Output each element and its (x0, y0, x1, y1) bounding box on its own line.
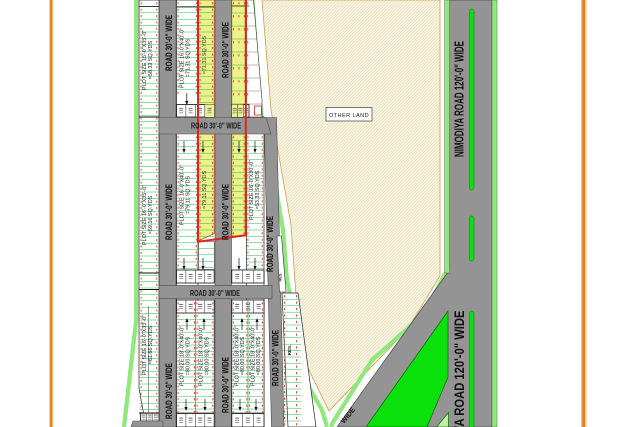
svg-text:=53.33 SQ.YDS: =53.33 SQ.YDS (255, 170, 261, 209)
svg-text:OTHER LAND: OTHER LAND (329, 113, 369, 119)
svg-text:ROAD 30'-0" WIDE: ROAD 30'-0" WIDE (163, 363, 174, 419)
svg-text:=79.11 SQ.YDS: =79.11 SQ.YDS (202, 171, 208, 210)
svg-text:=61.66 SQ.YDS: =61.66 SQ.YDS (148, 325, 154, 364)
svg-text:=58.33 SQ.YDS: =58.33 SQ.YDS (148, 40, 154, 79)
svg-text:ROAD 30'-0" WIDE: ROAD 30'-0" WIDE (219, 184, 230, 240)
svg-text:RES.: RES. (279, 273, 283, 282)
svg-text:NIMODIYA ROAD 120'-0" WIDE: NIMODIYA ROAD 120'-0" WIDE (452, 311, 467, 427)
svg-text:RES.: RES. (287, 345, 292, 356)
svg-text:ROAD 30'-0" WIDE: ROAD 30'-0" WIDE (264, 216, 275, 272)
svg-text:ROAD 30'-0" WIDE: ROAD 30'-0" WIDE (219, 22, 230, 78)
svg-text:=71.31 SQ.YDS: =71.31 SQ.YDS (202, 35, 208, 74)
svg-text:=80.00 SQ.YDS: =80.00 SQ.YDS (240, 336, 246, 375)
svg-text:=71.31 SQ.YDS: =71.31 SQ.YDS (186, 38, 192, 77)
svg-text:ROAD 30'-0" WIDE: ROAD 30'-0" WIDE (270, 330, 281, 386)
svg-text:=80.00 SQ.YDS: =80.00 SQ.YDS (256, 336, 262, 375)
svg-text:ROAD 30'-0" WIDE: ROAD 30'-0" WIDE (163, 15, 174, 71)
svg-text:ROAD 30'-0" WIDE: ROAD 30'-0" WIDE (163, 184, 174, 240)
svg-text:=59.16 SQ.YDS: =59.16 SQ.YDS (148, 195, 154, 234)
svg-text:ROAD 30'-0" WIDE: ROAD 30'-0" WIDE (190, 289, 240, 298)
svg-text:=80.00 SQ.YDS: =80.00 SQ.YDS (186, 336, 192, 375)
svg-text:ROAD 30'-0" WIDE: ROAD 30'-0" WIDE (191, 122, 241, 131)
svg-text:=80.00 SQ.YDS: =80.00 SQ.YDS (205, 336, 211, 375)
svg-text:=79.11 SQ.YDS: =79.11 SQ.YDS (186, 176, 192, 215)
svg-text:NIMODIYA ROAD 120'-0" WIDE: NIMODIYA ROAD 120'-0" WIDE (452, 41, 466, 157)
svg-text:ROAD 30'-0" WIDE: ROAD 30'-0" WIDE (219, 357, 230, 413)
